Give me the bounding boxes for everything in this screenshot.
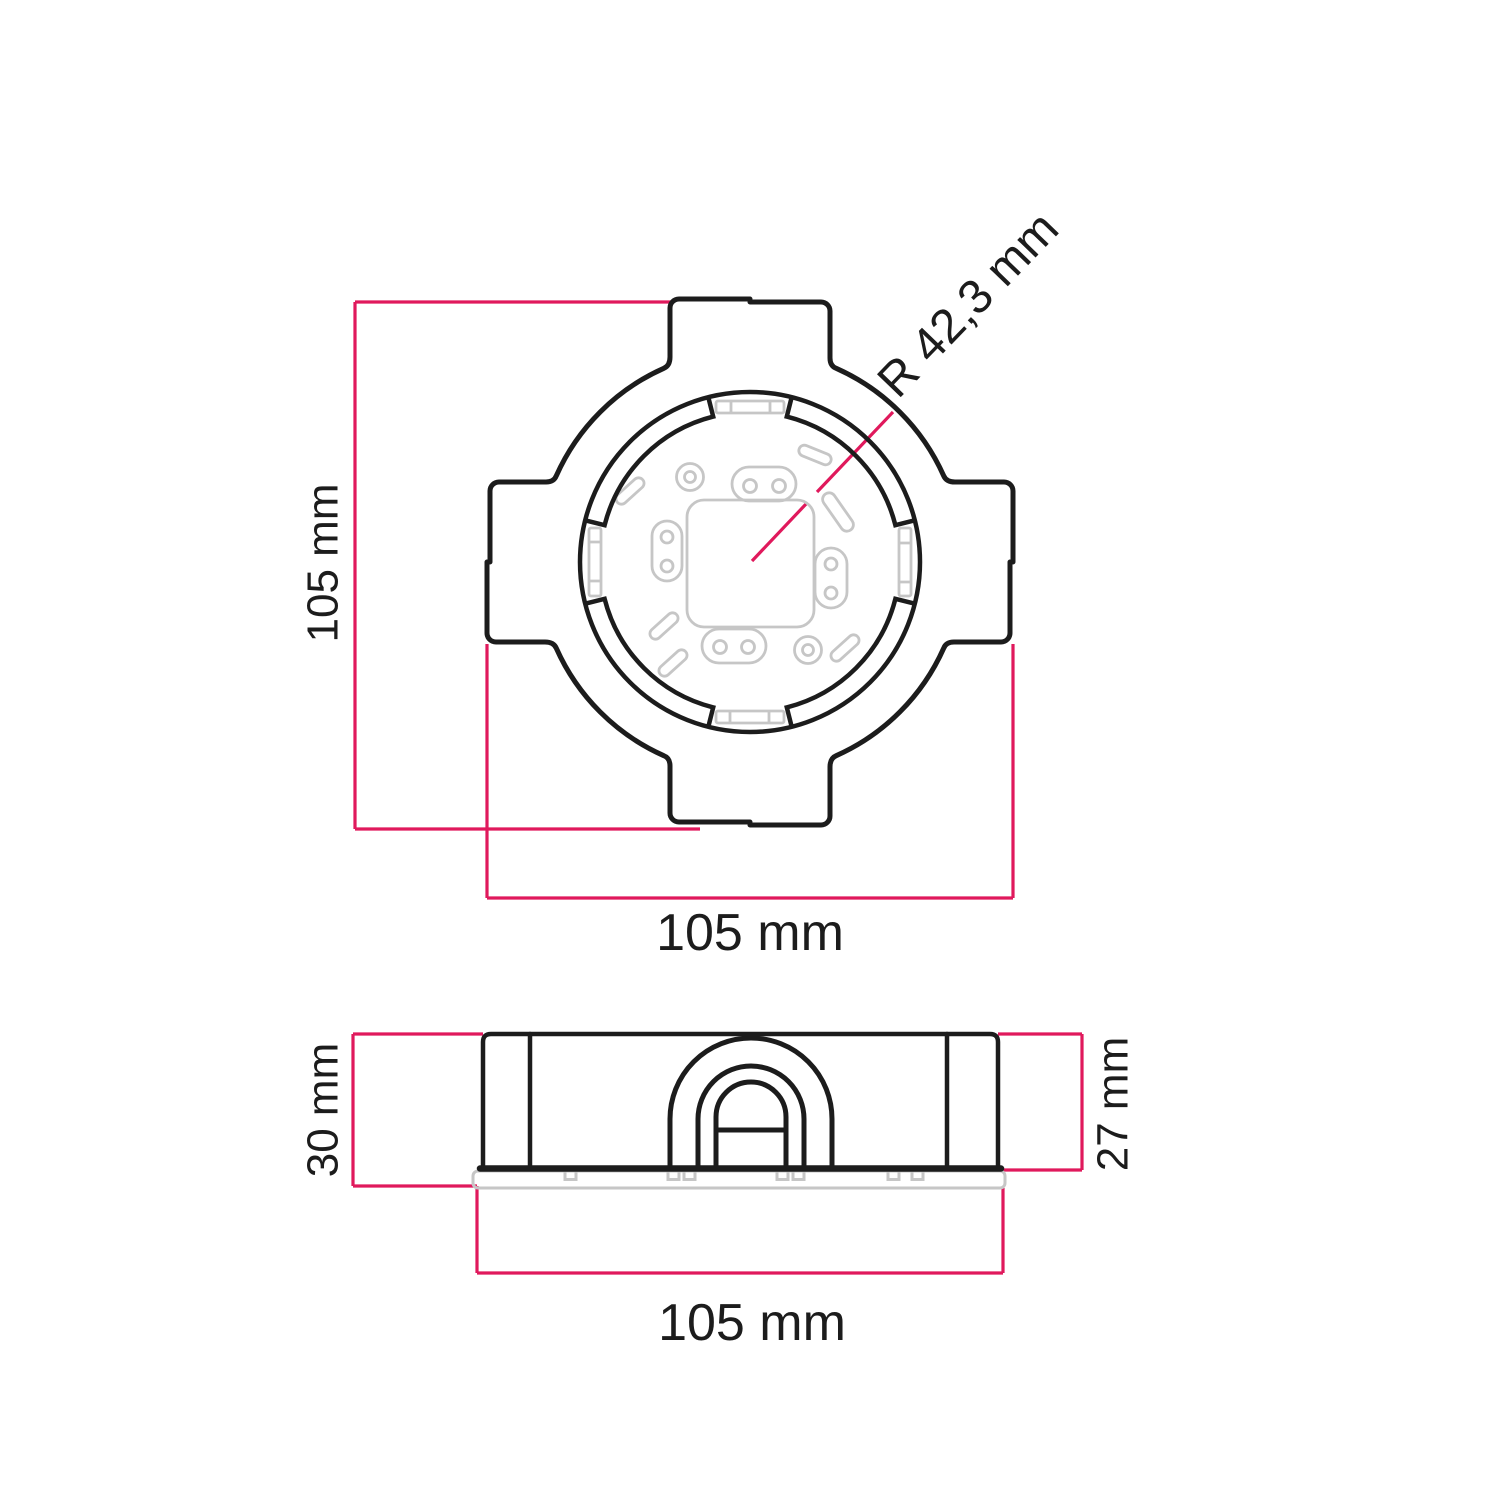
top-view-height-label: 105 mm — [298, 484, 347, 643]
recess-outer-circle — [580, 392, 920, 732]
cable-arch-inner — [716, 1082, 786, 1168]
terminal-pill-west — [652, 521, 682, 581]
side-view-labels: 30 mm 27 mm 105 mm — [298, 1037, 1137, 1352]
base-plate — [473, 1171, 1005, 1188]
side-body-dividers — [530, 1034, 947, 1168]
top-view: 105 mm 105 mm R 42,3 mm — [298, 202, 1069, 962]
center-square — [687, 500, 814, 627]
dimension-30mm-extent — [353, 1034, 483, 1186]
top-view-width-label: 105 mm — [656, 904, 844, 962]
top-view-radius-label: R 42,3 mm — [868, 202, 1069, 408]
side-body — [483, 1034, 998, 1168]
side-view-30mm-label: 30 mm — [298, 1043, 347, 1177]
dimension-width-extent — [487, 644, 1013, 898]
side-view-27mm-label: 27 mm — [1088, 1037, 1137, 1171]
technical-drawing: 105 mm 105 mm R 42,3 mm — [0, 0, 1500, 1500]
technical-drawing-page: 105 mm 105 mm R 42,3 mm — [0, 0, 1500, 1500]
side-view-base-plate — [473, 1171, 1005, 1189]
cable-arch — [670, 1038, 832, 1168]
dimension-105mm-extent — [477, 1186, 1003, 1273]
dimension-27mm-extent — [998, 1034, 1082, 1170]
terminal-pill-south — [702, 629, 766, 663]
side-view: 30 mm 27 mm 105 mm — [298, 1034, 1137, 1352]
top-view-labels: 105 mm 105 mm R 42,3 mm — [298, 202, 1069, 962]
terminal-pill-east — [815, 548, 847, 608]
terminal-pill-north — [732, 467, 796, 501]
top-view-internal-details — [589, 401, 911, 723]
recess-inner-arc — [787, 599, 913, 725]
ring-gap-tab — [716, 401, 784, 413]
cable-arch-outer — [670, 1038, 832, 1168]
screw-boss-northwest — [677, 464, 704, 491]
screw-boss-southeast — [795, 637, 822, 664]
side-view-body-outline — [480, 1034, 1001, 1169]
side-view-width-label: 105 mm — [658, 1294, 846, 1352]
